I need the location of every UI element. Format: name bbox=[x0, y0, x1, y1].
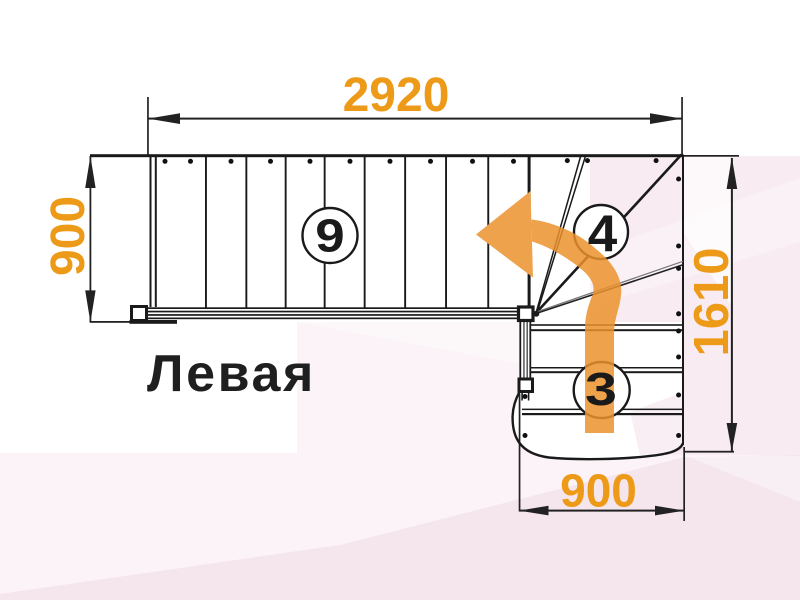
svg-text:4: 4 bbox=[588, 205, 618, 263]
svg-text:2920: 2920 bbox=[343, 69, 450, 122]
svg-text:9: 9 bbox=[315, 210, 344, 262]
svg-text:900: 900 bbox=[42, 196, 95, 276]
svg-text:1610: 1610 bbox=[685, 247, 739, 356]
svg-text:3: 3 bbox=[585, 364, 617, 415]
svg-text:Левая: Левая bbox=[147, 345, 316, 403]
svg-text:900: 900 bbox=[560, 465, 637, 517]
